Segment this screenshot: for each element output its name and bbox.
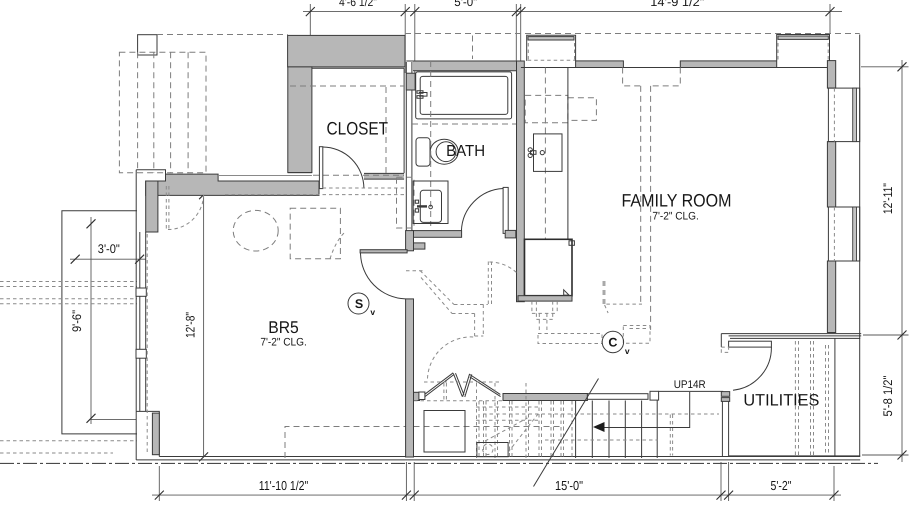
svg-text:v: v — [370, 307, 375, 317]
svg-text:12'-8": 12'-8" — [184, 312, 198, 338]
svg-text:4'-6 1/2": 4'-6 1/2" — [339, 0, 377, 9]
svg-text:UTILITIES: UTILITIES — [743, 392, 819, 410]
svg-text:5'-0": 5'-0" — [454, 0, 477, 9]
svg-text:14'-9 1/2": 14'-9 1/2" — [650, 0, 704, 9]
svg-text:9'-6": 9'-6" — [70, 310, 84, 332]
svg-text:CLOSET: CLOSET — [327, 119, 389, 139]
svg-text:5'-2": 5'-2" — [771, 478, 792, 493]
svg-text:FAMILY ROOM: FAMILY ROOM — [622, 191, 732, 211]
svg-text:S: S — [355, 297, 363, 311]
svg-text:BR5: BR5 — [268, 318, 299, 337]
svg-text:12'-11": 12'-11" — [881, 183, 895, 214]
svg-text:7'-2" CLG.: 7'-2" CLG. — [260, 337, 307, 349]
svg-text:C: C — [608, 336, 617, 350]
svg-text:15'-0": 15'-0" — [555, 478, 583, 493]
svg-text:UP14R: UP14R — [674, 379, 706, 391]
svg-text:v: v — [625, 346, 630, 356]
svg-text:3'-0": 3'-0" — [98, 242, 120, 256]
svg-text:7'-2" CLG.: 7'-2" CLG. — [652, 211, 699, 223]
svg-text:BATH: BATH — [446, 143, 485, 160]
svg-text:11'-10 1/2": 11'-10 1/2" — [259, 478, 309, 493]
svg-text:5'-8 1/2": 5'-8 1/2" — [881, 376, 895, 417]
